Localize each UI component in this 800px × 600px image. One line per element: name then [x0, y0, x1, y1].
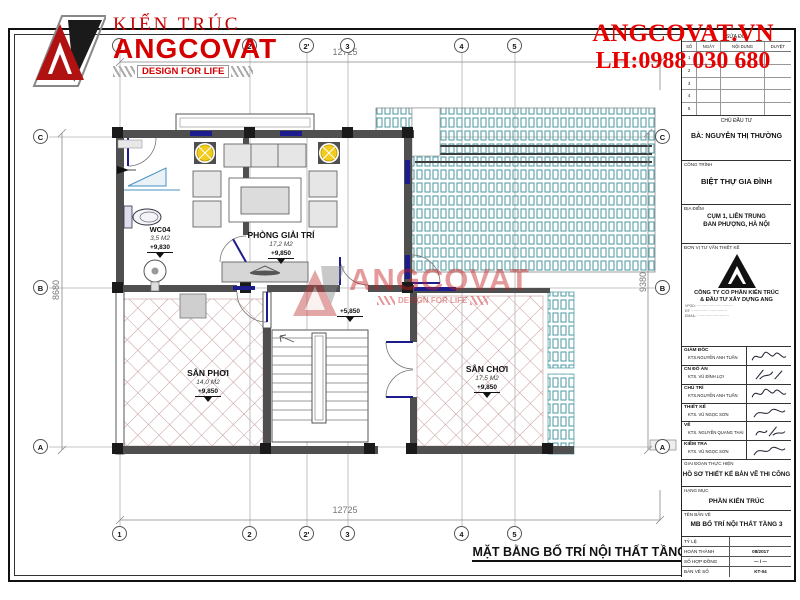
owner-section: CHỦ ĐẦU TƯ BÀ: NGUYỄN THỊ THƯỜNG — [682, 116, 791, 161]
grid-bubble-col: 3 — [340, 526, 355, 541]
signature-row-chu-tri: CHỦ TRÌ KTS.NGUYỄN ANH TUẤN — [682, 385, 791, 404]
watermark-name: ANGCOVAT — [349, 264, 530, 295]
room-label-play-yard: SÂN CHƠI 17,5 M2 +9,850 — [432, 364, 542, 398]
grid-bubble-col: 5 — [507, 38, 522, 53]
title-block: SỬA ĐỔI SỐ NGÀY NỘI DUNG DUYỆT 1 2 3 4 5… — [681, 33, 791, 577]
level-marker: +9,850 — [153, 388, 263, 402]
drawing-name-value: MB BỐ TRÍ NỘI THẤT TẦNG 3 — [682, 521, 791, 528]
brand-logo: KIẾN TRÚC ANGCOVAT DESIGN FOR LIFE — [26, 14, 277, 88]
grid-bubble-col: 1 — [112, 526, 127, 541]
room-name: SÂN CHƠI — [432, 364, 542, 374]
grid-bubble-col: 4 — [454, 526, 469, 541]
signature-icon — [750, 443, 788, 458]
hatch-decor — [470, 296, 488, 305]
consultant-section: ĐƠN VỊ TƯ VẤN THIẾT KẾ CÔNG TY CỔ PHẦN K… — [682, 244, 791, 347]
signature-icon — [750, 405, 788, 420]
revision-row: 5 — [682, 103, 791, 115]
signature-icon — [750, 367, 788, 382]
grid-bubble-col: 3 — [340, 38, 355, 53]
owner-label: CHỦ ĐẦU TƯ — [682, 116, 791, 124]
room-area: 17,5 M2 — [432, 375, 542, 382]
consultant-addr3: EMAIL: ··························· — [682, 314, 791, 319]
consultant-label: ĐƠN VỊ TƯ VẤN THIẾT KẾ — [682, 244, 791, 251]
signature-row-kiem-tra: KIỂM TRA KTS. VŨ NGỌC SƠN — [682, 441, 791, 460]
drawing-name-section: TÊN BẢN VẼ MB BỐ TRÍ NỘI THẤT TẦNG 3 — [682, 511, 791, 537]
consultant-logo-icon — [716, 252, 758, 290]
level-tick-icon — [483, 393, 491, 398]
grid-bubble-row: C — [655, 129, 670, 144]
category-value: PHẦN KIẾN TRÚC — [682, 498, 791, 505]
room-label-entertainment: PHÒNG GIẢI TRÍ 17,2 M2 +9,850 — [226, 230, 336, 264]
location-label: ĐỊA ĐIỂM — [682, 205, 791, 212]
signature-row-ve: VẼ KTS. NGUYỄN QUANG THÁI — [682, 422, 791, 441]
room-name: WC04 — [105, 225, 215, 234]
info-table: TỶ LỆ HOÀN THÀNH 08/2017 SỐ HỢP ĐỒNG — /… — [682, 537, 791, 577]
hotline: LH:0988 030 680 — [578, 48, 788, 74]
grid-bubble-row: B — [33, 280, 48, 295]
brand-logo-icon — [26, 14, 106, 88]
signature-icon — [750, 424, 788, 439]
signature-row-giam-doc: GIÁM ĐỐC KTS.NGUYỄN ANH TUẤN — [682, 347, 791, 366]
info-row: HOÀN THÀNH 08/2017 — [682, 547, 791, 557]
category-label: HẠNG MỤC — [682, 487, 791, 494]
drawing-sheet: 1 2 2' 3 4 5 1 2 2' 3 4 5 C B A C B A 12… — [0, 0, 800, 600]
consultant-company-line2: & ĐẦU TƯ XÂY DỰNG ANG — [682, 297, 791, 304]
revision-row: 4 — [682, 90, 791, 103]
room-label-drying-yard: SÂN PHƠI 14,0 M2 +9,850 — [153, 368, 263, 402]
revision-row: 3 — [682, 78, 791, 91]
location-section: ĐỊA ĐIỂM CỤM 1, LIÊN TRUNG ĐAN PHƯỢNG, H… — [682, 205, 791, 245]
location-line2: ĐAN PHƯỢNG, HÀ NỘI — [682, 222, 791, 228]
grid-bubble-col: 2' — [299, 526, 314, 541]
location-line1: CỤM 1, LIÊN TRUNG — [682, 214, 791, 220]
dim-right: 9380 — [638, 257, 648, 307]
brand-name: ANGCOVAT — [113, 36, 277, 63]
level-tick-icon — [204, 397, 212, 402]
room-name: PHÒNG GIẢI TRÍ — [226, 230, 336, 240]
signature-row-cn-do-an: CN ĐỒ ÁN KTS. VŨ ĐÌNH LỢI — [682, 366, 791, 385]
dim-left: 8680 — [51, 265, 61, 315]
signature-row-thiet-ke: THIẾT KẾ KTS. VŨ NGỌC SƠN — [682, 404, 791, 423]
hatch-decor — [377, 296, 395, 305]
level-marker: +9,850 — [432, 384, 542, 398]
level-tick-icon — [156, 253, 164, 258]
level-marker: +9,850 — [226, 250, 336, 264]
grid-bubble-col: 4 — [454, 38, 469, 53]
contact-info: ANGCOVAT.VN LH:0988 030 680 — [578, 20, 788, 74]
room-area: 14,0 M2 — [153, 379, 263, 386]
grid-bubble-col: 2' — [299, 38, 314, 53]
dim-bottom: 12725 — [305, 505, 385, 515]
hatch-decor — [113, 66, 135, 77]
project-label: CÔNG TRÌNH — [682, 161, 791, 168]
grid-bubble-row: B — [655, 280, 670, 295]
grid-bubble-col: 2 — [242, 526, 257, 541]
brand-tagline: DESIGN FOR LIFE — [137, 65, 229, 78]
drawing-name-label: TÊN BẢN VẼ — [682, 511, 791, 518]
signature-icon — [750, 349, 788, 364]
category-section: HẠNG MỤC PHẦN KIẾN TRÚC — [682, 487, 791, 512]
stair-level-marker: +5,850 — [320, 306, 380, 322]
room-area: 3,5 M2 — [105, 235, 215, 242]
signature-icon — [750, 386, 788, 401]
owner-value: BÀ: NGUYỄN THỊ THƯỜNG — [682, 133, 791, 140]
room-area: 17,2 M2 — [226, 241, 336, 248]
grid-bubble-row: A — [33, 439, 48, 454]
room-label-wc: WC04 3,5 M2 +9,830 — [105, 225, 215, 258]
grid-bubble-col: 5 — [507, 526, 522, 541]
stage-label: GIAI ĐOẠN THỰC HIỆN — [682, 460, 791, 467]
room-name: SÂN PHƠI — [153, 368, 263, 378]
level-marker: +9,830 — [105, 244, 215, 258]
stage-value: HỒ SƠ THIẾT KẾ BẢN VẼ THI CÔNG — [682, 471, 791, 478]
website: ANGCOVAT.VN — [578, 20, 788, 48]
info-row: TỶ LỆ — [682, 537, 791, 547]
level-tick-icon — [277, 259, 285, 264]
info-row: BẢN VẼ SỐ KT-04 — [682, 567, 791, 577]
level-tick-icon — [346, 317, 354, 322]
project-section: CÔNG TRÌNH BIỆT THỰ GIA ĐÌNH — [682, 161, 791, 204]
grid-bubble-row: C — [33, 129, 48, 144]
grid-bubble-row: A — [655, 439, 670, 454]
stage-section: GIAI ĐOẠN THỰC HIỆN HỒ SƠ THIẾT KẾ BẢN V… — [682, 460, 791, 487]
hatch-decor — [231, 66, 253, 77]
watermark-tagline: DESIGN FOR LIFE — [398, 296, 467, 305]
project-value: BIỆT THỰ GIA ĐÌNH — [682, 177, 791, 186]
info-row: SỐ HỢP ĐỒNG — / — — [682, 557, 791, 567]
